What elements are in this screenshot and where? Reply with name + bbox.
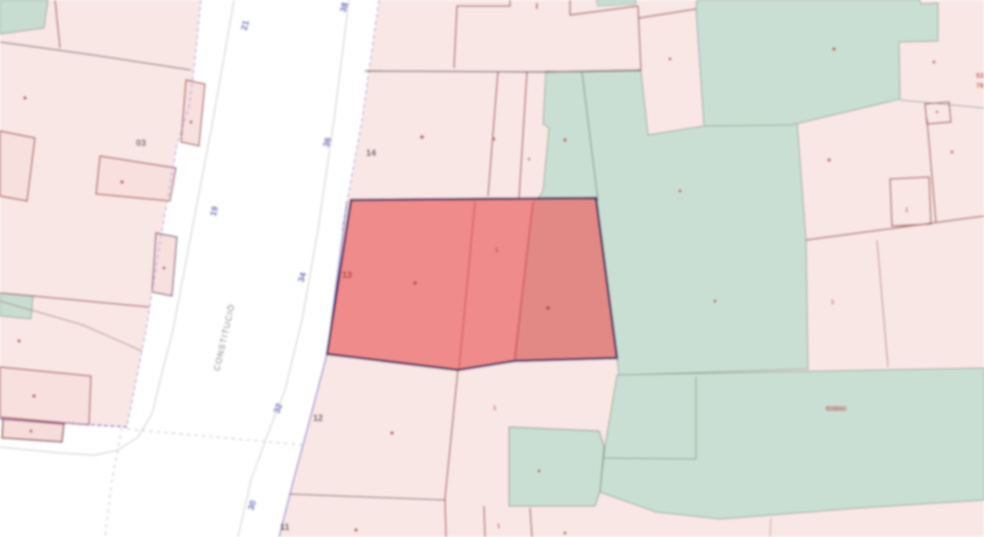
- svg-text:13: 13: [342, 270, 352, 280]
- svg-text:03: 03: [136, 138, 146, 148]
- svg-text:11: 11: [280, 522, 290, 532]
- svg-text:14: 14: [366, 148, 376, 158]
- svg-text:53: 53: [976, 73, 984, 80]
- svg-text:60860: 60860: [826, 404, 847, 413]
- svg-text:12: 12: [313, 413, 323, 423]
- svg-text:76: 76: [976, 83, 984, 90]
